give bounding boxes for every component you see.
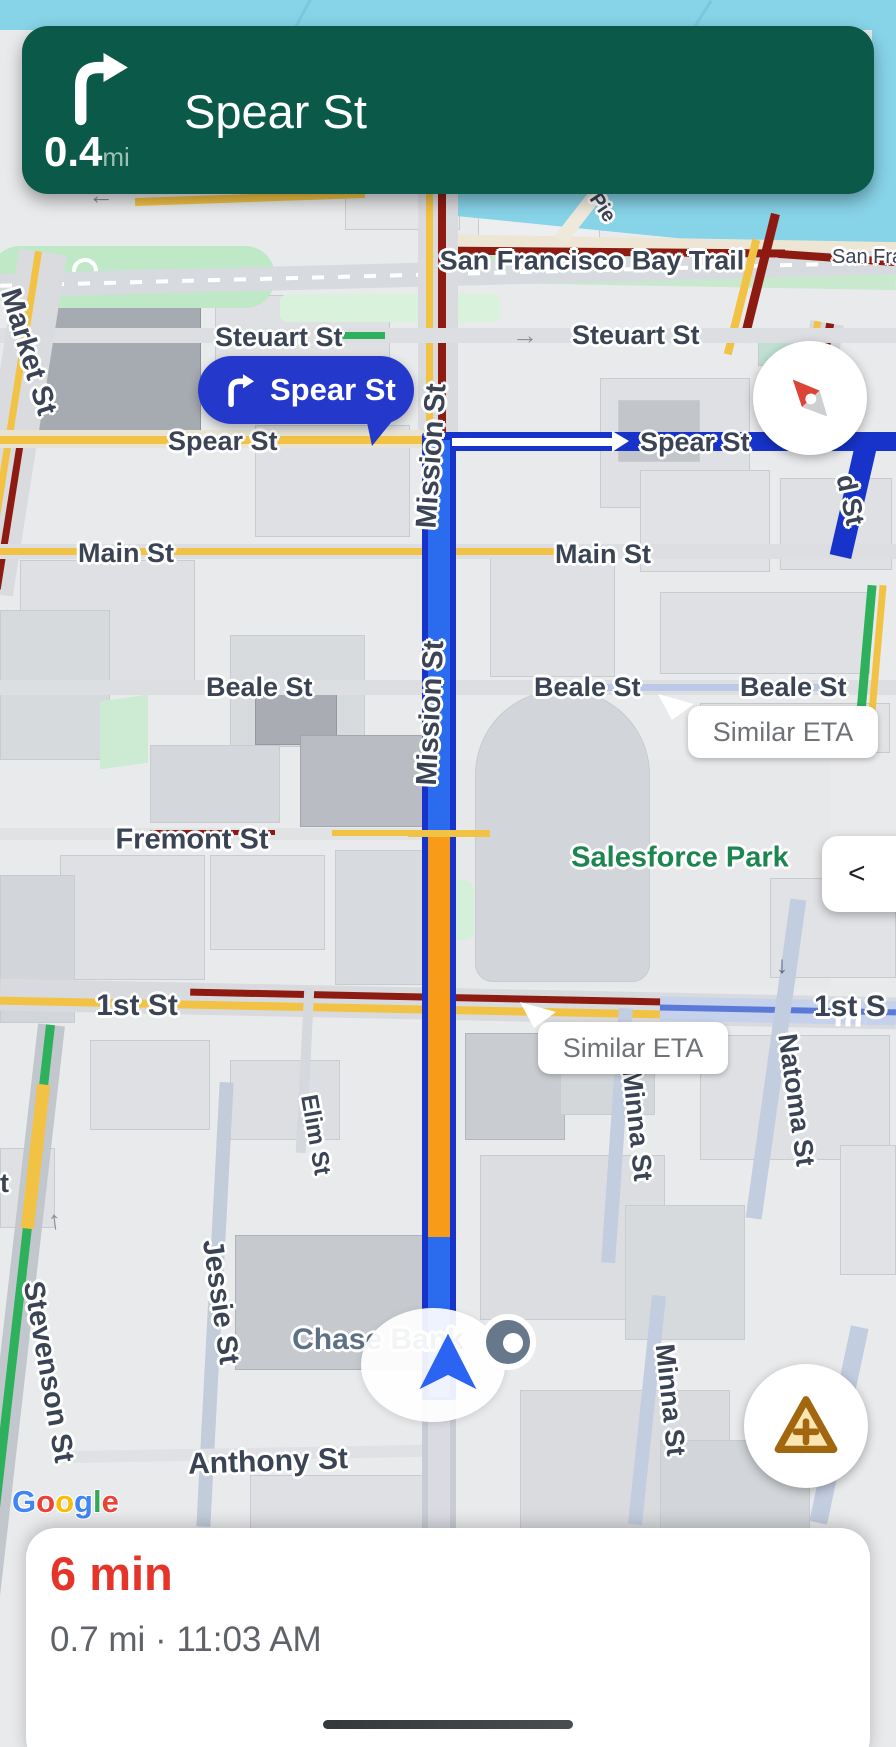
google-logo-letter: o — [36, 1484, 55, 1519]
traffic-green-steuart — [340, 332, 385, 339]
route-segment-orange-traffic — [428, 833, 450, 1237]
maneuver-banner[interactable]: 0.4mi Spear St — [22, 26, 874, 194]
navigation-chevron-icon — [417, 1332, 479, 1392]
one-way-arrow-steuart: → — [512, 320, 538, 351]
steuart-row-road — [0, 328, 896, 343]
street-label-spear-right: Spear St — [640, 427, 750, 458]
street-label-steuart-right: Steuart St — [572, 320, 700, 351]
street-label-anthony: Anthony St — [187, 1442, 348, 1482]
street-label-main-left: Main St — [78, 538, 174, 569]
street-label-steuart-left: Steuart St — [215, 322, 343, 353]
poi-dot-icon — [480, 1314, 536, 1370]
street-label-beale-mid: Beale St — [534, 672, 641, 703]
building — [60, 855, 205, 980]
street-label-spear-left: Spear St — [168, 426, 278, 457]
street-label-fremont: Fremont St — [115, 824, 268, 857]
route-turn-arrow-head — [612, 431, 629, 452]
one-way-arrow-stevenson: ↑ — [46, 1204, 63, 1236]
building — [300, 735, 425, 827]
sheet-drag-handle[interactable] — [323, 1720, 573, 1729]
route-turn-arrow-shaft — [452, 438, 614, 446]
building — [90, 1040, 210, 1130]
google-logo-letter: o — [55, 1484, 74, 1519]
trip-eta: 6 min — [50, 1546, 173, 1601]
eta-bubble-1-label: Similar ETA — [713, 717, 854, 748]
one-way-arrow-natoma: ↓ — [776, 952, 788, 980]
park-strip — [280, 294, 500, 322]
maneuver-instruction: Spear St — [184, 84, 367, 139]
next-turn-bubble-label: Spear St — [270, 372, 396, 408]
building — [250, 1475, 435, 1535]
maneuver-distance: 0.4mi — [44, 128, 130, 176]
building — [840, 1145, 896, 1275]
street-label-bay-trail: San Francisco Bay Trail — [440, 246, 745, 277]
navigation-screen: ← → ↓ ↑ Market St Steuart St Steuart St … — [0, 0, 896, 1747]
report-incident-button[interactable] — [744, 1364, 868, 1488]
eta-bubble-2[interactable]: Similar ETA — [538, 1022, 728, 1074]
street-label-t-partial: t — [0, 1168, 9, 1199]
map-canvas[interactable]: ← → ↓ ↑ Market St Steuart St Steuart St … — [0, 0, 896, 1747]
poi-label-salesforce-park: Salesforce Park — [571, 842, 789, 875]
street-label-first-right: 1st S — [814, 990, 886, 1024]
street-label-beale-left: Beale St — [206, 672, 313, 703]
trip-details: 0.7 mi · 11:03 AM — [50, 1620, 322, 1660]
fremont-crossing-yellow — [408, 830, 490, 837]
building — [335, 850, 425, 985]
warning-plus-icon — [771, 1391, 841, 1461]
traffic-yellow-fremont — [332, 830, 420, 836]
street-label-beale-right: Beale St — [740, 672, 847, 703]
trip-summary-sheet: 6 min 0.7 mi · 11:03 AM — [26, 1528, 870, 1747]
street-label-first-left: 1st St — [96, 989, 178, 1023]
building — [150, 745, 280, 823]
turn-right-icon — [220, 371, 258, 409]
google-logo-letter: l — [93, 1484, 102, 1519]
collapse-panel-button[interactable]: < — [822, 836, 896, 912]
street-label-san-fran: San Fran — [832, 246, 896, 269]
maneuver-distance-unit: mi — [102, 142, 129, 172]
salesforce-tower — [475, 690, 650, 982]
compass-button[interactable] — [753, 341, 867, 455]
google-logo-letter: e — [102, 1484, 119, 1519]
google-logo-letter: g — [74, 1484, 93, 1519]
eta-bubble-2-label: Similar ETA — [563, 1033, 704, 1064]
compass-needle-icon — [769, 357, 851, 439]
building — [660, 592, 870, 674]
street-label-main-right: Main St — [555, 539, 651, 570]
green-patch-fremont — [100, 695, 148, 770]
turn-right-icon — [58, 48, 136, 126]
collapse-panel-label: < — [848, 857, 866, 891]
eta-bubble-1[interactable]: Similar ETA — [688, 706, 878, 758]
google-logo-letter: G — [12, 1484, 36, 1519]
google-logo: Google — [12, 1484, 119, 1520]
building — [210, 855, 325, 950]
building — [625, 1205, 745, 1340]
